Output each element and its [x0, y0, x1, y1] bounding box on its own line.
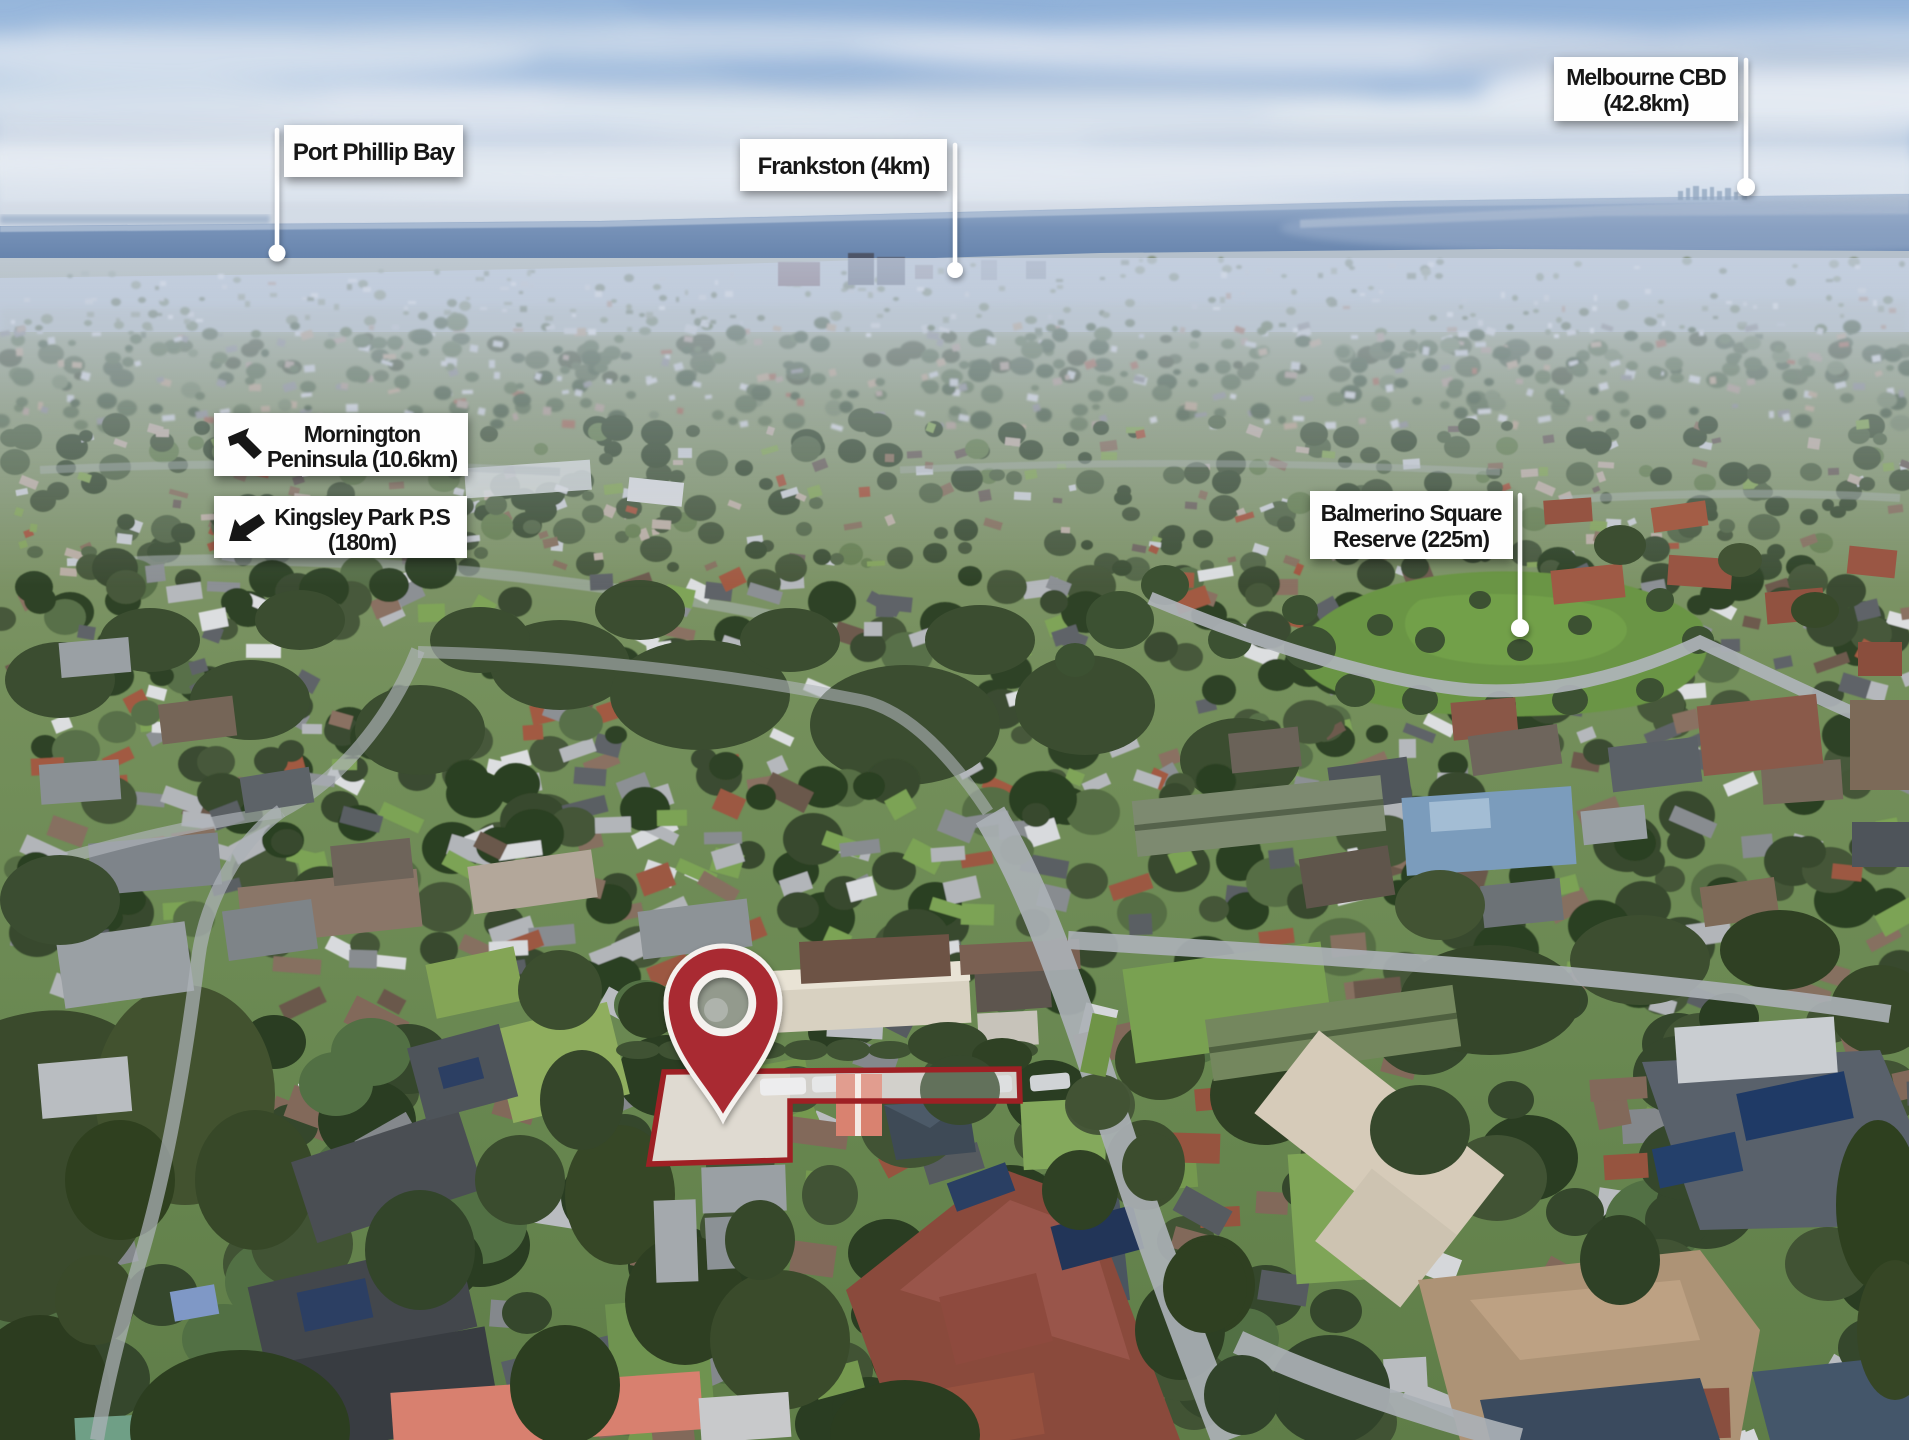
- svg-text:Kingsley Park P.S: Kingsley Park P.S: [274, 504, 450, 530]
- svg-text:Mornington: Mornington: [304, 421, 420, 447]
- svg-text:Reserve (225m): Reserve (225m): [1333, 526, 1489, 552]
- svg-text:Frankston (4km): Frankston (4km): [758, 153, 930, 180]
- svg-text:Melbourne CBD: Melbourne CBD: [1566, 64, 1726, 90]
- svg-text:(180m): (180m): [328, 529, 396, 555]
- svg-text:Peninsula (10.6km): Peninsula (10.6km): [267, 446, 458, 472]
- svg-text:Port Phillip Bay: Port Phillip Bay: [293, 139, 456, 166]
- svg-text:Balmerino Square: Balmerino Square: [1321, 500, 1502, 526]
- svg-text:(42.8km): (42.8km): [1603, 90, 1689, 116]
